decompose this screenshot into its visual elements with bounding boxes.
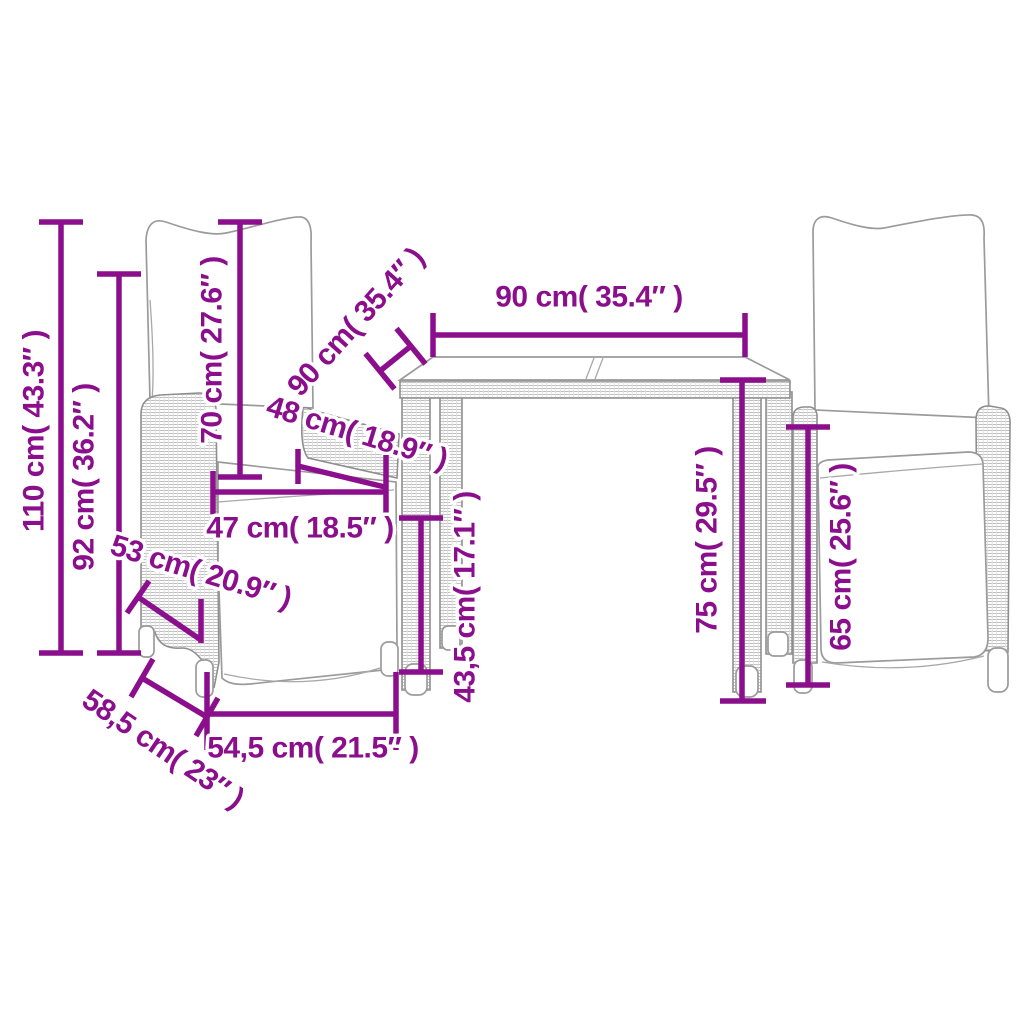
table-foot-back-right [768,632,788,656]
dim-backrest-height-label: 92 cm( 36.2″ ) [68,383,101,570]
dim-backrest-height-line [97,274,141,653]
dim-chair-base-width-label: 54,5 cm( 21.5″ ) [207,732,419,765]
left-chair-right-foot [381,642,398,676]
dim-backrest-height: 92 cm( 36.2″ ) [68,274,142,653]
dim-total-height-label: 110 cm( 43.3″ ) [18,330,51,532]
dim-table-width-line [433,313,745,357]
dim-table-width-label: 90 cm( 35.4″ ) [495,281,682,314]
dim-seat-width-label: 47 cm( 18.5″ ) [206,512,393,545]
table-leg-back-right [766,392,792,654]
dim-chair-base-width: 54,5 cm( 21.5″ ) [207,672,419,765]
table-leg-front-right [733,396,761,692]
table-top [400,357,790,380]
dim-table-height-label: 75 cm( 29.5″ ) [691,446,724,633]
right-chair-right-foot [988,648,1008,692]
right-chair-arm-left [793,407,817,663]
table-apron [400,381,790,398]
dim-table-width: 90 cm( 35.4″ ) [433,281,745,358]
diagram-canvas: 110 cm( 43.3″ ) 92 cm( 36.2″ ) 70 cm( 27… [0,0,1024,1024]
dim-seat-height-label: 43,5 cm( 17.1″ ) [449,491,482,703]
product-dimension-diagram: 110 cm( 43.3″ ) 92 cm( 36.2″ ) 70 cm( 27… [0,0,1024,1024]
left-chair-back-foot [139,626,154,657]
dim-armrest-height-label: 65 cm( 25.6″ ) [825,463,858,650]
right-chair-back-cushion [813,215,989,418]
dim-back-cushion-height-label: 70 cm( 27.6″ ) [196,256,229,443]
